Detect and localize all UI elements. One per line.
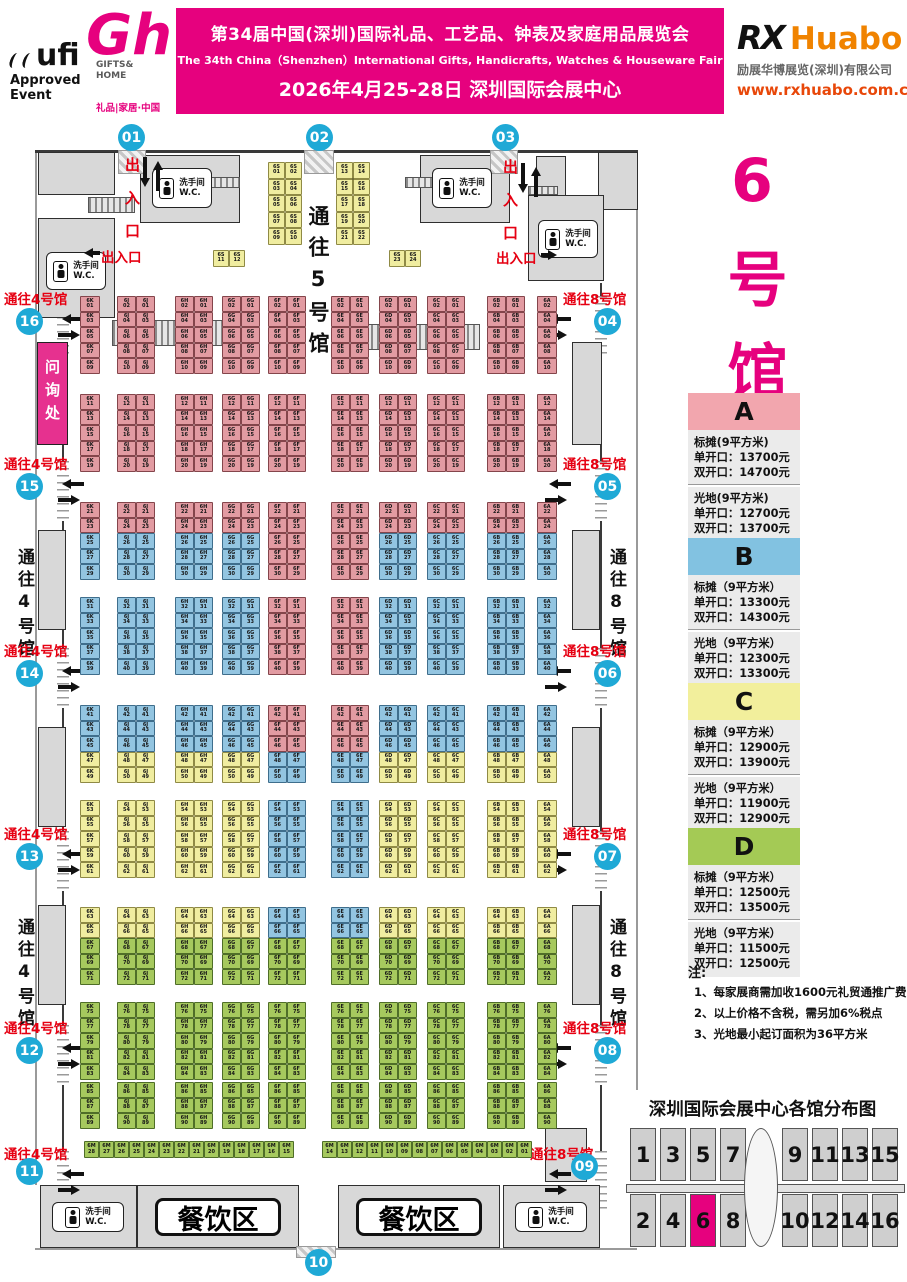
booth-6B22: 6B22 bbox=[487, 502, 506, 518]
booth-6C86: 6C86 bbox=[427, 1082, 446, 1098]
booth-6J19: 6J19 bbox=[136, 456, 155, 472]
booth-6H25: 6H25 bbox=[194, 533, 213, 549]
booth-6C16: 6C16 bbox=[427, 425, 446, 441]
booth-6E27: 6E27 bbox=[350, 549, 369, 565]
distribution-hall-13: 13 bbox=[842, 1128, 868, 1181]
booth-6A46: 6A46 bbox=[537, 736, 557, 752]
distribution-map-title: 深圳国际会展中心各馆分布图 bbox=[620, 1096, 905, 1121]
booth-6D23: 6D23 bbox=[398, 518, 417, 534]
booth-6J68: 6J68 bbox=[117, 938, 136, 954]
booth-6H58: 6H58 bbox=[175, 831, 194, 847]
booth-6D53: 6D53 bbox=[398, 800, 417, 816]
booth-6G29: 6G29 bbox=[241, 564, 260, 580]
booth-6C66: 6C66 bbox=[427, 923, 446, 939]
distribution-hall-5: 5 bbox=[690, 1128, 716, 1181]
booth-6D67: 6D67 bbox=[398, 938, 417, 954]
booth-6J70: 6J70 bbox=[117, 954, 136, 970]
booth-6H27: 6H27 bbox=[194, 549, 213, 565]
booth-6C18: 6C18 bbox=[427, 441, 446, 457]
booth-6D39: 6D39 bbox=[398, 659, 417, 675]
booth-6K87: 6K87 bbox=[80, 1098, 100, 1114]
price-standard-single: 单开口：12500元 bbox=[694, 885, 794, 900]
booth-6E28: 6E28 bbox=[331, 549, 350, 565]
booth-6H65: 6H65 bbox=[194, 923, 213, 939]
booth-6J78: 6J78 bbox=[117, 1018, 136, 1034]
gate-07-to-hall8-label: 通往8号馆 bbox=[563, 823, 626, 843]
booth-6F57: 6F57 bbox=[287, 831, 306, 847]
booth-6B01: 6B01 bbox=[506, 296, 525, 312]
hall-number-title: 6号馆 bbox=[722, 146, 782, 432]
booth-6H12: 6H12 bbox=[175, 394, 194, 410]
booth-6E63: 6E63 bbox=[350, 907, 369, 923]
booth-6C48: 6C48 bbox=[427, 752, 446, 768]
booth-6C46: 6C46 bbox=[427, 736, 446, 752]
booth-6J16: 6J16 bbox=[117, 425, 136, 441]
booth-6K69: 6K69 bbox=[80, 954, 100, 970]
booth-6E50: 6E50 bbox=[331, 767, 350, 783]
booth-6B87: 6B87 bbox=[506, 1098, 525, 1114]
booth-6H48: 6H48 bbox=[175, 752, 194, 768]
booth-6B90: 6B90 bbox=[487, 1113, 506, 1129]
booth-6G23: 6G23 bbox=[241, 518, 260, 534]
booth-6E49: 6E49 bbox=[350, 767, 369, 783]
booth-6G19: 6G19 bbox=[241, 456, 260, 472]
booth-6G08: 6G08 bbox=[222, 343, 241, 359]
booth-6K61: 6K61 bbox=[80, 862, 100, 878]
booth-6H55: 6H55 bbox=[194, 816, 213, 832]
booth-6M25: 6M25 bbox=[129, 1141, 144, 1158]
booth-6A30: 6A30 bbox=[537, 564, 557, 580]
booth-6B31: 6B31 bbox=[506, 597, 525, 613]
booth-6C37: 6C37 bbox=[446, 644, 465, 660]
booth-6A44: 6A44 bbox=[537, 721, 557, 737]
booth-6G41: 6G41 bbox=[241, 705, 260, 721]
booth-6H10: 6H10 bbox=[175, 358, 194, 374]
structure-block bbox=[38, 905, 66, 1005]
gate-11-badge: 11 bbox=[16, 1158, 43, 1185]
booth-6G79: 6G79 bbox=[241, 1033, 260, 1049]
booth-6C77: 6C77 bbox=[446, 1018, 465, 1034]
booth-6H05: 6H05 bbox=[194, 327, 213, 343]
booth-6C44: 6C44 bbox=[427, 721, 446, 737]
booth-6S02: 6S02 bbox=[285, 162, 302, 179]
booth-6G45: 6G45 bbox=[241, 736, 260, 752]
booth-6A32: 6A32 bbox=[537, 597, 557, 613]
booth-6H78: 6H78 bbox=[175, 1018, 194, 1034]
booth-6J23: 6J23 bbox=[136, 518, 155, 534]
booth-6K43: 6K43 bbox=[80, 721, 100, 737]
booth-6F36: 6F36 bbox=[268, 628, 287, 644]
booth-6C54: 6C54 bbox=[427, 800, 446, 816]
booth-6S15: 6S15 bbox=[336, 179, 353, 196]
booth-6B05: 6B05 bbox=[506, 327, 525, 343]
note-item: 3、光地最小起订面积为36平方米 bbox=[694, 1026, 868, 1042]
booth-6G33: 6G33 bbox=[241, 613, 260, 629]
booth-6E18: 6E18 bbox=[331, 441, 350, 457]
booth-6F75: 6F75 bbox=[287, 1002, 306, 1018]
booth-6F32: 6F32 bbox=[268, 597, 287, 613]
booth-6J38: 6J38 bbox=[117, 644, 136, 660]
booth-6A14: 6A14 bbox=[537, 410, 557, 426]
booth-6E62: 6E62 bbox=[331, 862, 350, 878]
booth-6B21: 6B21 bbox=[506, 502, 525, 518]
booth-6C39: 6C39 bbox=[446, 659, 465, 675]
booth-6D36: 6D36 bbox=[379, 628, 398, 644]
booth-6G39: 6G39 bbox=[241, 659, 260, 675]
booth-6G77: 6G77 bbox=[241, 1018, 260, 1034]
booth-6G67: 6G67 bbox=[241, 938, 260, 954]
booth-6G36: 6G36 bbox=[222, 628, 241, 644]
booth-6E76: 6E76 bbox=[331, 1002, 350, 1018]
booth-6A06: 6A06 bbox=[537, 327, 557, 343]
booth-6C80: 6C80 bbox=[427, 1033, 446, 1049]
booth-6D04: 6D04 bbox=[379, 312, 398, 328]
booth-6M26: 6M26 bbox=[114, 1141, 129, 1158]
booth-6K35: 6K35 bbox=[80, 628, 100, 644]
booth-6D37: 6D37 bbox=[398, 644, 417, 660]
booth-6H35: 6H35 bbox=[194, 628, 213, 644]
booth-6F33: 6F33 bbox=[287, 613, 306, 629]
booth-6E45: 6E45 bbox=[350, 736, 369, 752]
booth-6G09: 6G09 bbox=[241, 358, 260, 374]
booth-6J33: 6J33 bbox=[136, 613, 155, 629]
booth-6E11: 6E11 bbox=[350, 394, 369, 410]
booth-6G90: 6G90 bbox=[222, 1113, 241, 1129]
structure-block bbox=[572, 727, 600, 827]
booth-6E15: 6E15 bbox=[350, 425, 369, 441]
booth-6G82: 6G82 bbox=[222, 1049, 241, 1065]
booth-6A38: 6A38 bbox=[537, 644, 557, 660]
booth-6B04: 6B04 bbox=[487, 312, 506, 328]
booth-6B40: 6B40 bbox=[487, 659, 506, 675]
booth-6G54: 6G54 bbox=[222, 800, 241, 816]
booth-6K09: 6K09 bbox=[80, 358, 100, 374]
distribution-hall-4: 4 bbox=[660, 1194, 686, 1247]
booth-6C34: 6C34 bbox=[427, 613, 446, 629]
booth-6H54: 6H54 bbox=[175, 800, 194, 816]
booth-6G58: 6G58 bbox=[222, 831, 241, 847]
wc-text: 洗手间W.C. bbox=[548, 1207, 574, 1227]
booth-6J77: 6J77 bbox=[136, 1018, 155, 1034]
booth-6K53: 6K53 bbox=[80, 800, 100, 816]
booth-6H44: 6H44 bbox=[175, 721, 194, 737]
booth-6F03: 6F03 bbox=[287, 312, 306, 328]
booth-6B23: 6B23 bbox=[506, 518, 525, 534]
booth-6C22: 6C22 bbox=[427, 502, 446, 518]
booth-6S03: 6S03 bbox=[268, 179, 285, 196]
booth-6F69: 6F69 bbox=[287, 954, 306, 970]
structure-block bbox=[38, 530, 66, 630]
booth-6E29: 6E29 bbox=[350, 564, 369, 580]
gate-15-to-hall4-label: 通往4号馆 bbox=[4, 453, 67, 473]
booth-6D49: 6D49 bbox=[398, 767, 417, 783]
structure-block bbox=[572, 905, 600, 1005]
booth-6E05: 6E05 bbox=[350, 327, 369, 343]
booth-6K13: 6K13 bbox=[80, 410, 100, 426]
booth-6B46: 6B46 bbox=[487, 736, 506, 752]
booth-6E22: 6E22 bbox=[331, 502, 350, 518]
booth-6G48: 6G48 bbox=[222, 752, 241, 768]
booth-6B56: 6B56 bbox=[487, 816, 506, 832]
booth-6D33: 6D33 bbox=[398, 613, 417, 629]
booth-6D46: 6D46 bbox=[379, 736, 398, 752]
gate-02-badge: 02 bbox=[306, 124, 333, 151]
booth-6J71: 6J71 bbox=[136, 969, 155, 985]
booth-6D20: 6D20 bbox=[379, 456, 398, 472]
booth-6H20: 6H20 bbox=[175, 456, 194, 472]
booth-6K75: 6K75 bbox=[80, 1002, 100, 1018]
booth-6G22: 6G22 bbox=[222, 502, 241, 518]
booth-6G04: 6G04 bbox=[222, 312, 241, 328]
booth-6B47: 6B47 bbox=[506, 752, 525, 768]
booth-6B19: 6B19 bbox=[506, 456, 525, 472]
gate-14-badge: 14 bbox=[16, 660, 43, 687]
booth-6F46: 6F46 bbox=[268, 736, 287, 752]
booth-6F60: 6F60 bbox=[268, 847, 287, 863]
booth-6D90: 6D90 bbox=[379, 1113, 398, 1129]
booth-6G68: 6G68 bbox=[222, 938, 241, 954]
booth-6D41: 6D41 bbox=[398, 705, 417, 721]
booth-6C33: 6C33 bbox=[446, 613, 465, 629]
booth-6D19: 6D19 bbox=[398, 456, 417, 472]
wc-text: 洗手间W.C. bbox=[565, 229, 591, 249]
price-rawspace-double: 双开口：12500元 bbox=[694, 956, 794, 971]
booth-6J12: 6J12 bbox=[117, 394, 136, 410]
gate-15-badge: 15 bbox=[16, 473, 43, 500]
booth-6E20: 6E20 bbox=[331, 456, 350, 472]
distribution-hall-12: 12 bbox=[812, 1194, 838, 1247]
booth-6J06: 6J06 bbox=[117, 327, 136, 343]
booth-6B38: 6B38 bbox=[487, 644, 506, 660]
booth-6B13: 6B13 bbox=[506, 410, 525, 426]
booth-6G72: 6G72 bbox=[222, 969, 241, 985]
booth-6D68: 6D68 bbox=[379, 938, 398, 954]
booth-6J28: 6J28 bbox=[117, 549, 136, 565]
booth-6B72: 6B72 bbox=[487, 969, 506, 985]
booth-6H02: 6H02 bbox=[175, 296, 194, 312]
booth-6D14: 6D14 bbox=[379, 410, 398, 426]
booth-6D17: 6D17 bbox=[398, 441, 417, 457]
booth-6S11: 6S11 bbox=[213, 250, 229, 267]
structure-block bbox=[572, 342, 602, 445]
booth-6C26: 6C26 bbox=[427, 533, 446, 549]
booth-6G49: 6G49 bbox=[241, 767, 260, 783]
booth-6B41: 6B41 bbox=[506, 705, 525, 721]
booth-6C41: 6C41 bbox=[446, 705, 465, 721]
booth-6H49: 6H49 bbox=[194, 767, 213, 783]
booth-6B25: 6B25 bbox=[506, 533, 525, 549]
booth-6C70: 6C70 bbox=[427, 954, 446, 970]
booth-6B34: 6B34 bbox=[487, 613, 506, 629]
booth-6F11: 6F11 bbox=[287, 394, 306, 410]
booth-6C65: 6C65 bbox=[446, 923, 465, 939]
booth-6G25: 6G25 bbox=[241, 533, 260, 549]
booth-6G78: 6G78 bbox=[222, 1018, 241, 1034]
booth-6D80: 6D80 bbox=[379, 1033, 398, 1049]
booth-6J01: 6J01 bbox=[136, 296, 155, 312]
booth-6H59: 6H59 bbox=[194, 847, 213, 863]
booth-6B11: 6B11 bbox=[506, 394, 525, 410]
booth-6J27: 6J27 bbox=[136, 549, 155, 565]
booth-6E68: 6E68 bbox=[331, 938, 350, 954]
price-card-D-body: 标摊（9平方米）单开口：12500元双开口：13500元光地（9平方米）单开口：… bbox=[688, 865, 800, 977]
booth-6M14: 6M14 bbox=[322, 1141, 337, 1158]
booth-6F31: 6F31 bbox=[287, 597, 306, 613]
booth-6K19: 6K19 bbox=[80, 456, 100, 472]
booth-6K55: 6K55 bbox=[80, 816, 100, 832]
price-standard-title: 标摊（9平方米） bbox=[694, 580, 794, 595]
booth-6E35: 6E35 bbox=[350, 628, 369, 644]
booth-6B82: 6B82 bbox=[487, 1049, 506, 1065]
notes-heading: 注: bbox=[688, 962, 706, 981]
booth-6F54: 6F54 bbox=[268, 800, 287, 816]
booth-6E23: 6E23 bbox=[350, 518, 369, 534]
booth-6C88: 6C88 bbox=[427, 1098, 446, 1114]
booth-6B20: 6B20 bbox=[487, 456, 506, 472]
booth-6M04: 6M04 bbox=[472, 1141, 487, 1158]
booth-6S17: 6S17 bbox=[336, 195, 353, 212]
price-standard-title: 标摊（9平方米） bbox=[694, 725, 794, 740]
booth-6J13: 6J13 bbox=[136, 410, 155, 426]
arrow-r-icon bbox=[545, 1185, 571, 1195]
booth-6D44: 6D44 bbox=[379, 721, 398, 737]
booth-6D06: 6D06 bbox=[379, 327, 398, 343]
booth-6K79: 6K79 bbox=[80, 1033, 100, 1049]
booth-6J82: 6J82 bbox=[117, 1049, 136, 1065]
arrow-d-icon bbox=[140, 157, 150, 191]
gate-06-badge: 06 bbox=[594, 660, 621, 687]
booth-6E41: 6E41 bbox=[350, 705, 369, 721]
booth-6S08: 6S08 bbox=[285, 212, 302, 229]
price-standard-single: 单开口：12900元 bbox=[694, 740, 794, 755]
booth-6F23: 6F23 bbox=[287, 518, 306, 534]
booth-6B02: 6B02 bbox=[487, 296, 506, 312]
booth-6A34: 6A34 bbox=[537, 613, 557, 629]
booth-6G35: 6G35 bbox=[241, 628, 260, 644]
booth-6H18: 6H18 bbox=[175, 441, 194, 457]
booth-6E40: 6E40 bbox=[331, 659, 350, 675]
booth-6J90: 6J90 bbox=[117, 1113, 136, 1129]
booth-6A58: 6A58 bbox=[537, 831, 557, 847]
booth-6B60: 6B60 bbox=[487, 847, 506, 863]
booth-6J61: 6J61 bbox=[136, 862, 155, 878]
booth-6B78: 6B78 bbox=[487, 1018, 506, 1034]
booth-6H14: 6H14 bbox=[175, 410, 194, 426]
booth-6J46: 6J46 bbox=[117, 736, 136, 752]
arrow-u-icon bbox=[153, 157, 163, 191]
booth-6S14: 6S14 bbox=[353, 162, 370, 179]
booth-6F09: 6F09 bbox=[287, 358, 306, 374]
booth-6B70: 6B70 bbox=[487, 954, 506, 970]
price-standard-single: 单开口：13300元 bbox=[694, 595, 794, 610]
booth-6F44: 6F44 bbox=[268, 721, 287, 737]
booth-6D42: 6D42 bbox=[379, 705, 398, 721]
booth-6D79: 6D79 bbox=[398, 1033, 417, 1049]
booth-6E48: 6E48 bbox=[331, 752, 350, 768]
booth-6F79: 6F79 bbox=[287, 1033, 306, 1049]
booth-6F76: 6F76 bbox=[268, 1002, 287, 1018]
booth-6A82: 6A82 bbox=[537, 1049, 557, 1065]
booth-6E07: 6E07 bbox=[350, 343, 369, 359]
booth-6J89: 6J89 bbox=[136, 1113, 155, 1129]
price-card-B-header: B bbox=[688, 538, 800, 575]
booth-6H71: 6H71 bbox=[194, 969, 213, 985]
booth-6J66: 6J66 bbox=[117, 923, 136, 939]
booth-6C27: 6C27 bbox=[446, 549, 465, 565]
booth-6B16: 6B16 bbox=[487, 425, 506, 441]
booth-6E80: 6E80 bbox=[331, 1033, 350, 1049]
booth-6M24: 6M24 bbox=[144, 1141, 159, 1158]
booth-6C82: 6C82 bbox=[427, 1049, 446, 1065]
booth-6D10: 6D10 bbox=[379, 358, 398, 374]
booth-6H03: 6H03 bbox=[194, 312, 213, 328]
booth-6J47: 6J47 bbox=[136, 752, 155, 768]
distribution-hall-15: 15 bbox=[872, 1128, 898, 1181]
gate-08-to-hall8-label: 通往8号馆 bbox=[563, 1017, 626, 1037]
price-card-C-body: 标摊（9平方米）单开口：12900元双开口：13900元光地（9平方米）单开口：… bbox=[688, 720, 800, 832]
booth-6S23: 6S23 bbox=[389, 250, 405, 267]
booth-6G03: 6G03 bbox=[241, 312, 260, 328]
booth-6C32: 6C32 bbox=[427, 597, 446, 613]
booth-6D63: 6D63 bbox=[398, 907, 417, 923]
booth-6B59: 6B59 bbox=[506, 847, 525, 863]
booth-6D34: 6D34 bbox=[379, 613, 398, 629]
booth-6E19: 6E19 bbox=[350, 456, 369, 472]
booth-6J07: 6J07 bbox=[136, 343, 155, 359]
booth-6H87: 6H87 bbox=[194, 1098, 213, 1114]
booth-6K31: 6K31 bbox=[80, 597, 100, 613]
booth-6B36: 6B36 bbox=[487, 628, 506, 644]
distribution-hall-6: 6 bbox=[690, 1194, 716, 1247]
booth-6G12: 6G12 bbox=[222, 394, 241, 410]
booth-6H82: 6H82 bbox=[175, 1049, 194, 1065]
booth-6S18: 6S18 bbox=[353, 195, 370, 212]
booth-6D15: 6D15 bbox=[398, 425, 417, 441]
booth-6G61: 6G61 bbox=[241, 862, 260, 878]
booth-6E64: 6E64 bbox=[331, 907, 350, 923]
booth-6D50: 6D50 bbox=[379, 767, 398, 783]
booth-6C64: 6C64 bbox=[427, 907, 446, 923]
booth-6C76: 6C76 bbox=[427, 1002, 446, 1018]
price-standard-title: 标摊(9平方米) bbox=[694, 435, 794, 450]
booth-6K37: 6K37 bbox=[80, 644, 100, 660]
gate-12-badge: 12 bbox=[16, 1037, 43, 1064]
booth-6C43: 6C43 bbox=[446, 721, 465, 737]
booth-6J50: 6J50 bbox=[117, 767, 136, 783]
booth-6F59: 6F59 bbox=[287, 847, 306, 863]
booth-6B88: 6B88 bbox=[487, 1098, 506, 1114]
booth-6G88: 6G88 bbox=[222, 1098, 241, 1114]
booth-6C09: 6C09 bbox=[446, 358, 465, 374]
booth-6H06: 6H06 bbox=[175, 327, 194, 343]
booth-6D30: 6D30 bbox=[379, 564, 398, 580]
price-rawspace-double: 双开口：13300元 bbox=[694, 666, 794, 681]
booth-6G26: 6G26 bbox=[222, 533, 241, 549]
booth-6B17: 6B17 bbox=[506, 441, 525, 457]
booth-6D75: 6D75 bbox=[398, 1002, 417, 1018]
booth-6B03: 6B03 bbox=[506, 312, 525, 328]
booth-6H08: 6H08 bbox=[175, 343, 194, 359]
booth-6K41: 6K41 bbox=[80, 705, 100, 721]
booth-6S10: 6S10 bbox=[285, 228, 302, 245]
booth-6E32: 6E32 bbox=[331, 597, 350, 613]
booth-6D32: 6D32 bbox=[379, 597, 398, 613]
booth-6H21: 6H21 bbox=[194, 502, 213, 518]
booth-6J67: 6J67 bbox=[136, 938, 155, 954]
booth-6F78: 6F78 bbox=[268, 1018, 287, 1034]
booth-6A50: 6A50 bbox=[537, 767, 557, 783]
booth-6J45: 6J45 bbox=[136, 736, 155, 752]
